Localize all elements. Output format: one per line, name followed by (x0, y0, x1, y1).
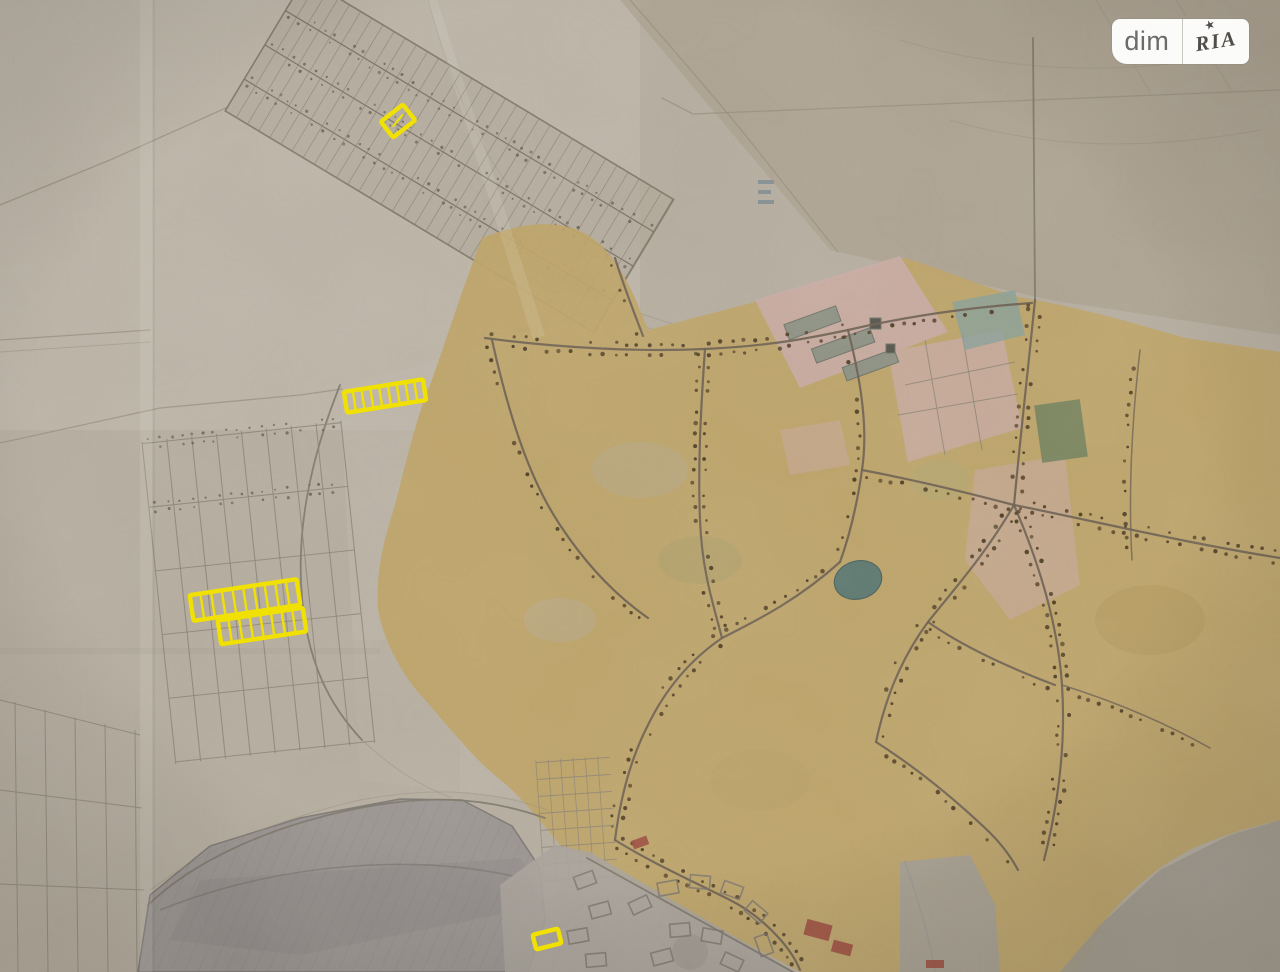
dim-ria-watermark: dim ★ RIA (1112, 19, 1249, 64)
watermark-ria-label: RIA (1193, 26, 1239, 57)
watermark-dim-label: dim (1124, 26, 1169, 57)
listing-map-photo: dim ★ RIA (0, 0, 1280, 972)
cadastral-map (0, 0, 1280, 972)
watermark-left-cell: dim (1112, 19, 1182, 64)
watermark-right-cell: ★ RIA (1180, 14, 1253, 69)
paper-creases (0, 0, 1280, 972)
